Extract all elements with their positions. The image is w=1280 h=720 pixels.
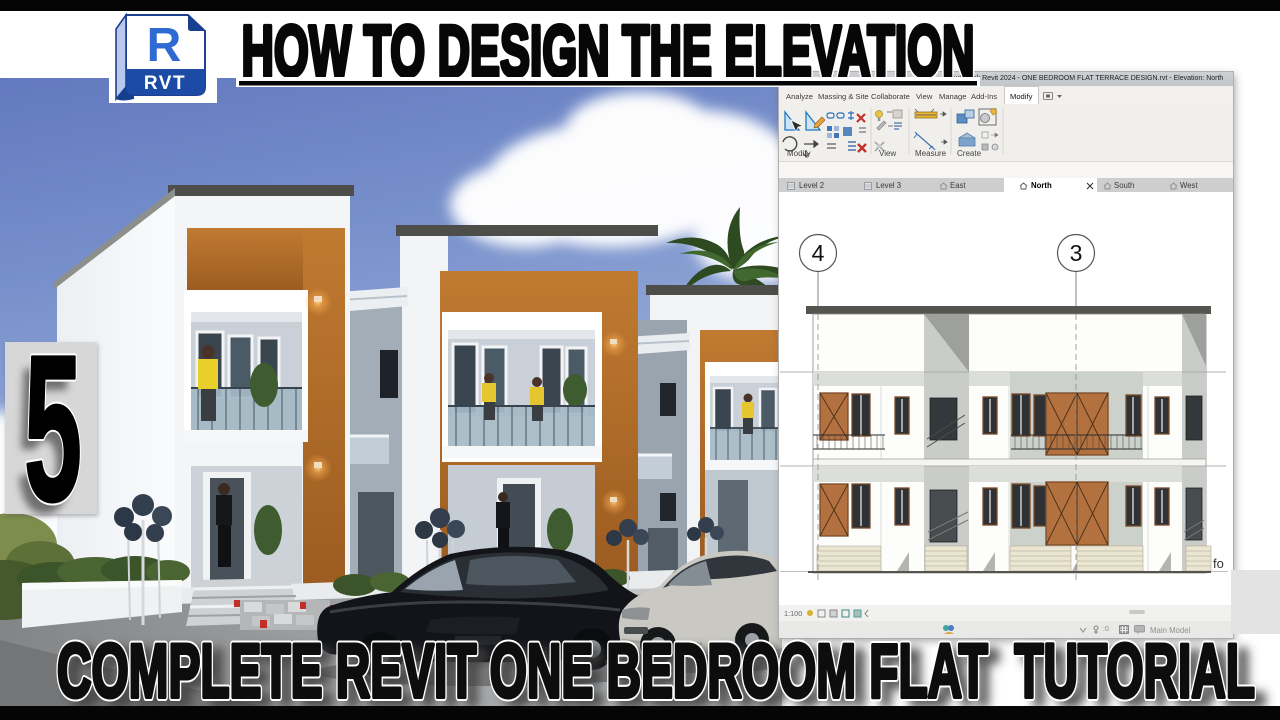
- svg-text:COMPLETE REVIT ONE BEDROOM FLA: COMPLETE REVIT ONE BEDROOM FLAT TUTORIAL: [57, 629, 1255, 714]
- svg-text:3: 3: [1070, 240, 1083, 266]
- svg-text:4: 4: [812, 240, 825, 266]
- svg-text:fo: fo: [1213, 556, 1224, 571]
- svg-text:5: 5: [24, 328, 82, 538]
